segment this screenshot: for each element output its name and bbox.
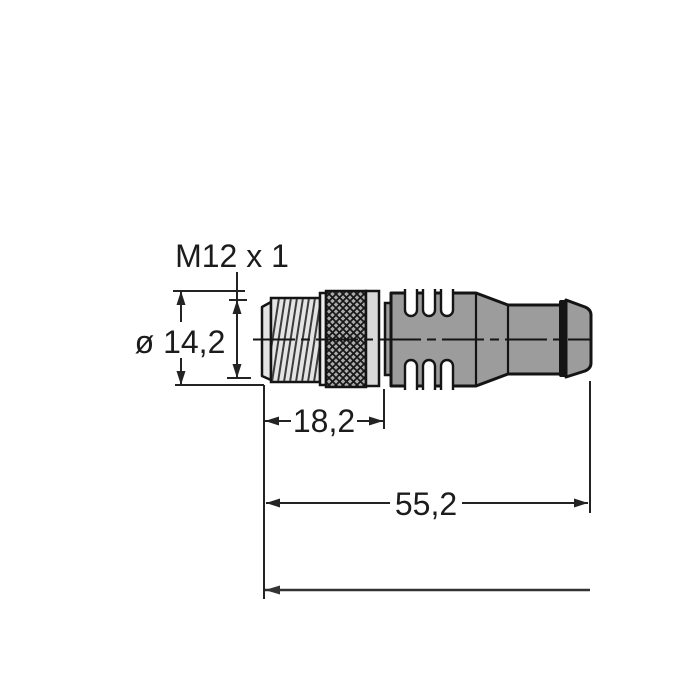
connector-shape-group: [253, 289, 591, 390]
flex-groove: [441, 289, 453, 316]
arrowhead-up-icon: [233, 300, 242, 314]
dimension-thread-spec: [227, 272, 251, 378]
label-thread-spec: M12 x 1: [175, 238, 289, 274]
flex-groove: [441, 360, 453, 390]
flex-groove: [405, 360, 417, 390]
arrowhead-left-icon: [265, 586, 280, 595]
arrowhead-right-icon: [574, 499, 588, 508]
connector-drawing: M12 x 1 ø 14,2 18,2 55,2: [0, 0, 680, 680]
label-thread-length: 18,2: [293, 403, 355, 439]
arrowhead-left-icon: [265, 417, 279, 426]
label-overall-length: 55,2: [395, 486, 457, 522]
label-diameter: ø 14,2: [135, 324, 226, 360]
arrowhead-down-icon: [177, 371, 186, 385]
arrowhead-right-icon: [369, 417, 383, 426]
thread-chamfer: [262, 302, 271, 380]
flex-groove: [423, 360, 435, 390]
flex-groove: [423, 289, 435, 316]
drawing-canvas: M12 x 1 ø 14,2 18,2 55,2: [0, 0, 680, 680]
flex-grooves-top: [405, 289, 453, 316]
flex-groove: [405, 289, 417, 316]
flex-grooves-bottom: [405, 360, 453, 390]
arrowhead-left-icon: [266, 499, 280, 508]
arrowhead-down-icon: [233, 364, 242, 378]
arrowhead-up-icon: [177, 291, 186, 305]
dimension-cable-length: [265, 586, 590, 595]
